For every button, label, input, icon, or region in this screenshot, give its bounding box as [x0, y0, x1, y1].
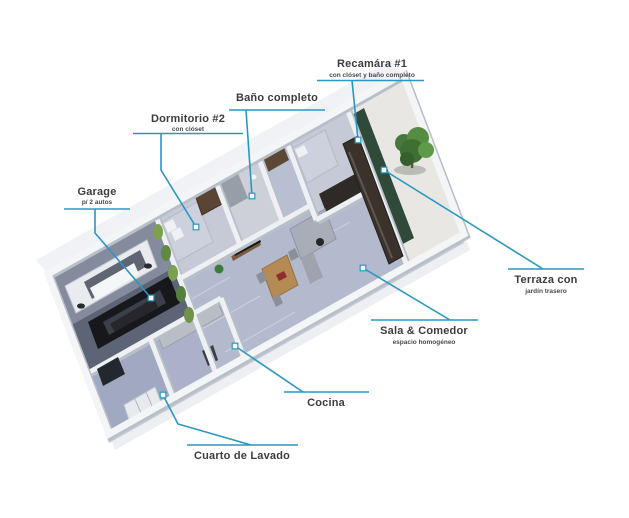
room-label: Garage [77, 186, 116, 198]
floor-plan-figure: Recamára #1 con clóset y baño completo B… [0, 0, 629, 518]
room-label: Recamára #1 [337, 58, 407, 70]
leader-marker [232, 343, 238, 349]
room-label: Sala & Comedor [380, 325, 468, 337]
leader-marker [381, 167, 387, 173]
tree-foliage [400, 152, 414, 166]
suv-wheel [144, 263, 152, 268]
leader-marker [160, 392, 166, 398]
room-label: Dormitorio #2 [151, 113, 225, 125]
room-sublabel: espacio homogéneo [393, 339, 456, 346]
grass-plant [161, 245, 171, 261]
floor-plan-canvas: Recamára #1 con clóset y baño completo B… [0, 0, 629, 518]
suv-wheel [77, 303, 85, 308]
coffee-table [316, 238, 324, 246]
room-label: Cuarto de Lavado [194, 450, 290, 462]
leader-marker [355, 137, 361, 143]
room-label: Baño completo [236, 92, 318, 104]
tree-foliage [418, 142, 434, 158]
room-label: Cocina [307, 397, 346, 409]
indoor-plant [215, 265, 224, 274]
room-sublabel: p/ 2 autos [82, 199, 113, 206]
leader-marker [193, 224, 199, 230]
grass-plant [176, 286, 186, 302]
grass-plant [168, 265, 178, 281]
grass-plant [184, 307, 194, 323]
room-label: Terraza con [514, 274, 577, 286]
grass-plant [153, 224, 163, 240]
room-sublabel: con clóset [172, 126, 205, 133]
room-sublabel: con clóset y baño completo [329, 72, 415, 79]
leader-marker [249, 193, 255, 199]
leader-marker [148, 295, 154, 301]
room-sublabel: jardín trasero [524, 288, 567, 295]
tree-shadow [394, 165, 426, 175]
leader-marker [360, 265, 366, 271]
